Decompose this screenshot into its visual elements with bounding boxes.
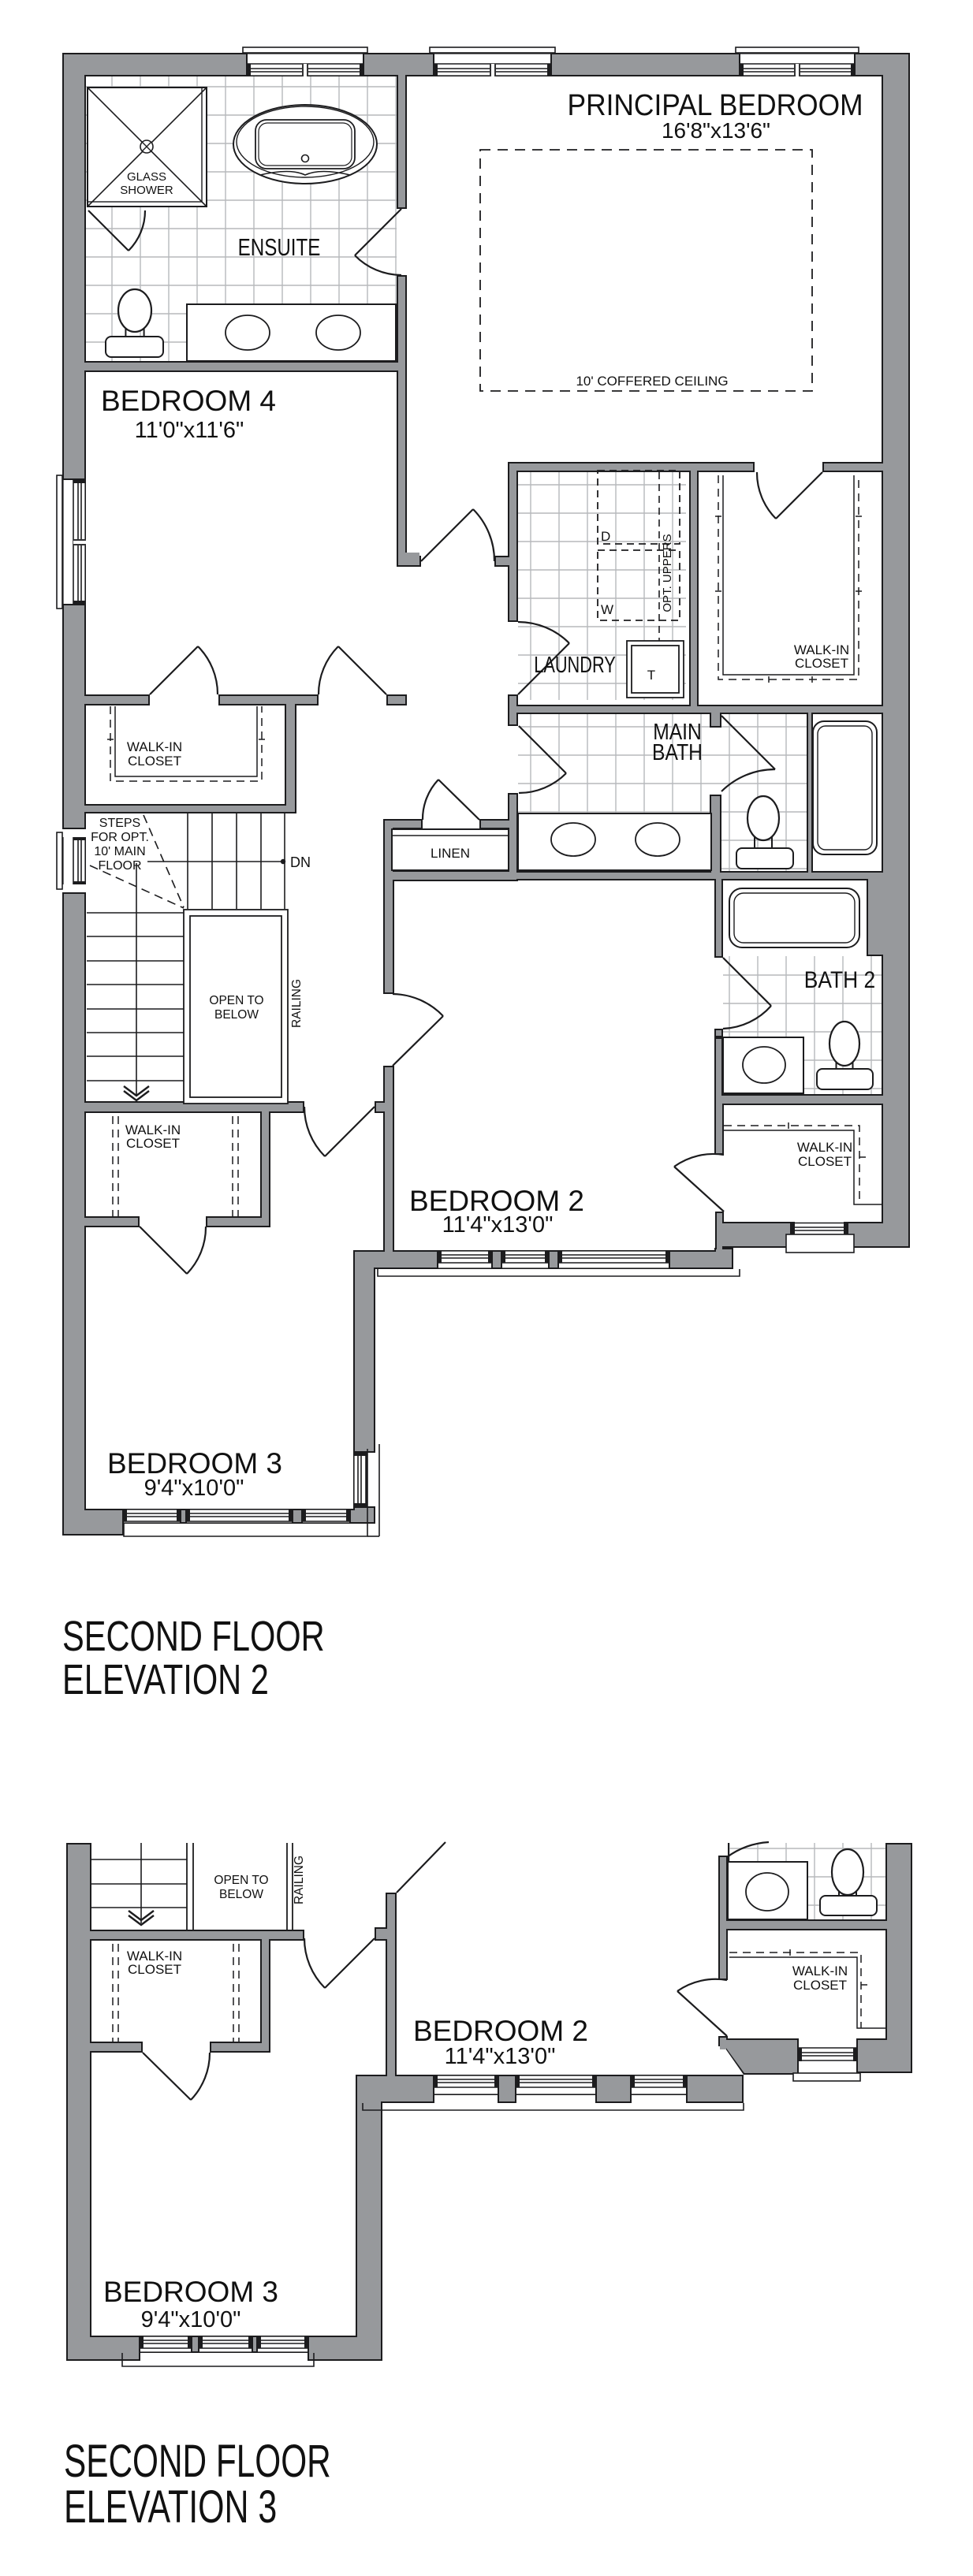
svg-text:CLOSET: CLOSET bbox=[128, 754, 181, 769]
svg-text:BELOW: BELOW bbox=[219, 1888, 263, 1901]
svg-text:WALK-IN: WALK-IN bbox=[797, 1140, 852, 1155]
svg-text:BEDROOM 4: BEDROOM 4 bbox=[101, 385, 276, 417]
svg-text:LINEN: LINEN bbox=[431, 846, 470, 861]
svg-text:DN: DN bbox=[290, 854, 311, 870]
svg-text:BEDROOM 2: BEDROOM 2 bbox=[413, 2015, 588, 2047]
svg-text:OPEN TO: OPEN TO bbox=[214, 1874, 268, 1887]
svg-text:ELEVATION 2: ELEVATION 2 bbox=[62, 1656, 269, 1704]
svg-text:FLOOR: FLOOR bbox=[98, 859, 141, 873]
svg-text:16'8"x13'6": 16'8"x13'6" bbox=[662, 118, 770, 143]
svg-text:CLOSET: CLOSET bbox=[795, 656, 848, 671]
svg-text:BATH 2: BATH 2 bbox=[804, 966, 875, 992]
svg-text:CLOSET: CLOSET bbox=[128, 1962, 181, 1977]
svg-text:RAILING: RAILING bbox=[290, 979, 304, 1028]
svg-text:LAUNDRY: LAUNDRY bbox=[534, 653, 616, 678]
svg-text:11'0"x11'6": 11'0"x11'6" bbox=[135, 418, 244, 443]
svg-text:OPEN TO: OPEN TO bbox=[209, 994, 263, 1007]
svg-text:9'4"x10'0": 9'4"x10'0" bbox=[144, 1476, 244, 1501]
svg-text:WALK-IN: WALK-IN bbox=[127, 739, 182, 754]
svg-text:CLOSET: CLOSET bbox=[793, 1978, 847, 1993]
svg-text:CLOSET: CLOSET bbox=[126, 1136, 180, 1151]
svg-text:T: T bbox=[647, 668, 655, 683]
svg-text:9'4"x10'0": 9'4"x10'0" bbox=[141, 2307, 241, 2332]
svg-text:ENSUITE: ENSUITE bbox=[238, 233, 321, 261]
svg-text:STEPS: STEPS bbox=[99, 817, 140, 830]
svg-text:W: W bbox=[601, 602, 613, 617]
svg-text:D: D bbox=[601, 529, 610, 544]
svg-text:BATH: BATH bbox=[652, 739, 703, 765]
svg-text:11'4"x13'0": 11'4"x13'0" bbox=[442, 1212, 554, 1238]
svg-text:PRINCIPAL BEDROOM: PRINCIPAL BEDROOM bbox=[568, 88, 863, 121]
svg-text:SHOWER: SHOWER bbox=[120, 184, 173, 197]
svg-text:WALK-IN: WALK-IN bbox=[792, 1964, 848, 1979]
svg-text:BELOW: BELOW bbox=[214, 1008, 259, 1022]
svg-text:11'4"x13'0": 11'4"x13'0" bbox=[445, 2044, 556, 2069]
svg-text:GLASS: GLASS bbox=[127, 170, 166, 184]
svg-text:10' COFFERED CEILING: 10' COFFERED CEILING bbox=[576, 374, 728, 389]
svg-text:FOR OPT.: FOR OPT. bbox=[91, 831, 149, 844]
svg-text:ELEVATION 3: ELEVATION 3 bbox=[64, 2481, 277, 2533]
svg-text:BEDROOM 3: BEDROOM 3 bbox=[107, 1447, 282, 1480]
svg-text:RAILING: RAILING bbox=[293, 1856, 306, 1904]
svg-text:SECOND FLOOR: SECOND FLOOR bbox=[64, 2435, 331, 2486]
svg-text:CLOSET: CLOSET bbox=[798, 1154, 852, 1169]
svg-text:10' MAIN: 10' MAIN bbox=[94, 845, 145, 858]
svg-text:SECOND FLOOR: SECOND FLOOR bbox=[62, 1613, 325, 1661]
svg-text:BEDROOM 3: BEDROOM 3 bbox=[103, 2276, 278, 2308]
svg-text:OPT. UPPERS: OPT. UPPERS bbox=[661, 534, 674, 612]
